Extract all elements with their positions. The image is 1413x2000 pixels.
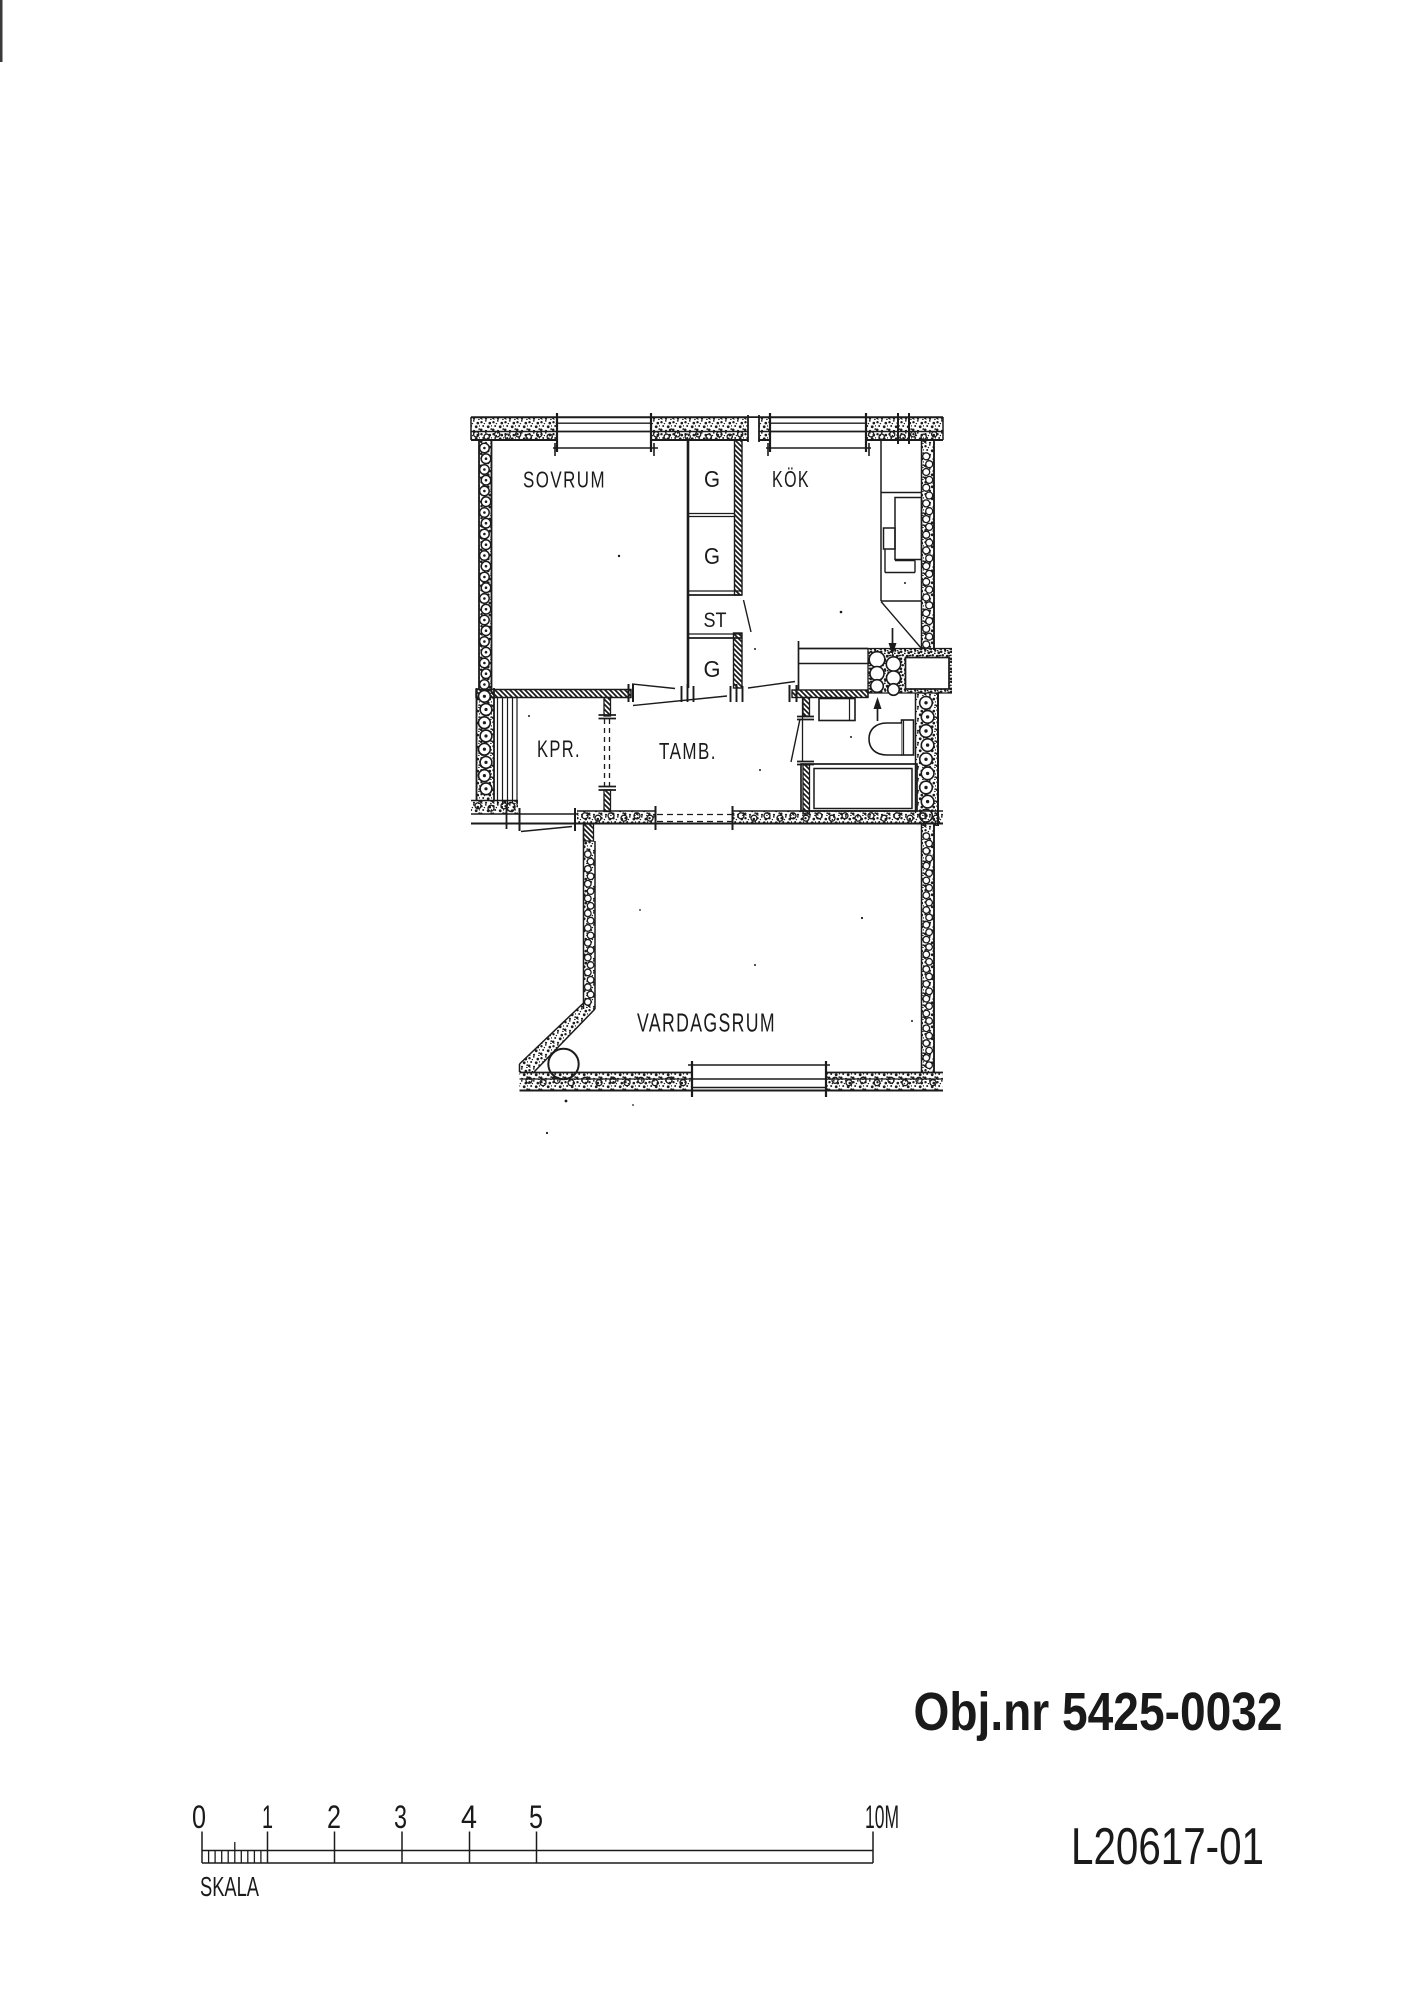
svg-text:G: G (704, 466, 720, 492)
svg-text:3: 3 (394, 1799, 407, 1835)
svg-text:1: 1 (262, 1799, 273, 1835)
svg-text:2: 2 (327, 1799, 341, 1835)
svg-text:G: G (704, 543, 720, 569)
svg-text:KÖK: KÖK (772, 466, 810, 492)
svg-text:VARDAGSRUM: VARDAGSRUM (637, 1008, 776, 1038)
svg-text:ST: ST (704, 609, 727, 632)
svg-text:Obj.nr 5425-0032: Obj.nr 5425-0032 (914, 1682, 1283, 1742)
svg-text:SKALA: SKALA (200, 1871, 259, 1902)
svg-text:KPR.: KPR. (537, 736, 581, 763)
svg-text:TAMB.: TAMB. (659, 738, 717, 764)
svg-text:10M: 10M (865, 1799, 899, 1835)
svg-text:5: 5 (529, 1799, 543, 1835)
svg-text:SOVRUM: SOVRUM (523, 467, 606, 493)
svg-text:0: 0 (192, 1799, 206, 1835)
svg-text:4: 4 (461, 1799, 477, 1835)
svg-text:G: G (704, 656, 721, 682)
svg-text:L20617-01: L20617-01 (1071, 1818, 1264, 1876)
